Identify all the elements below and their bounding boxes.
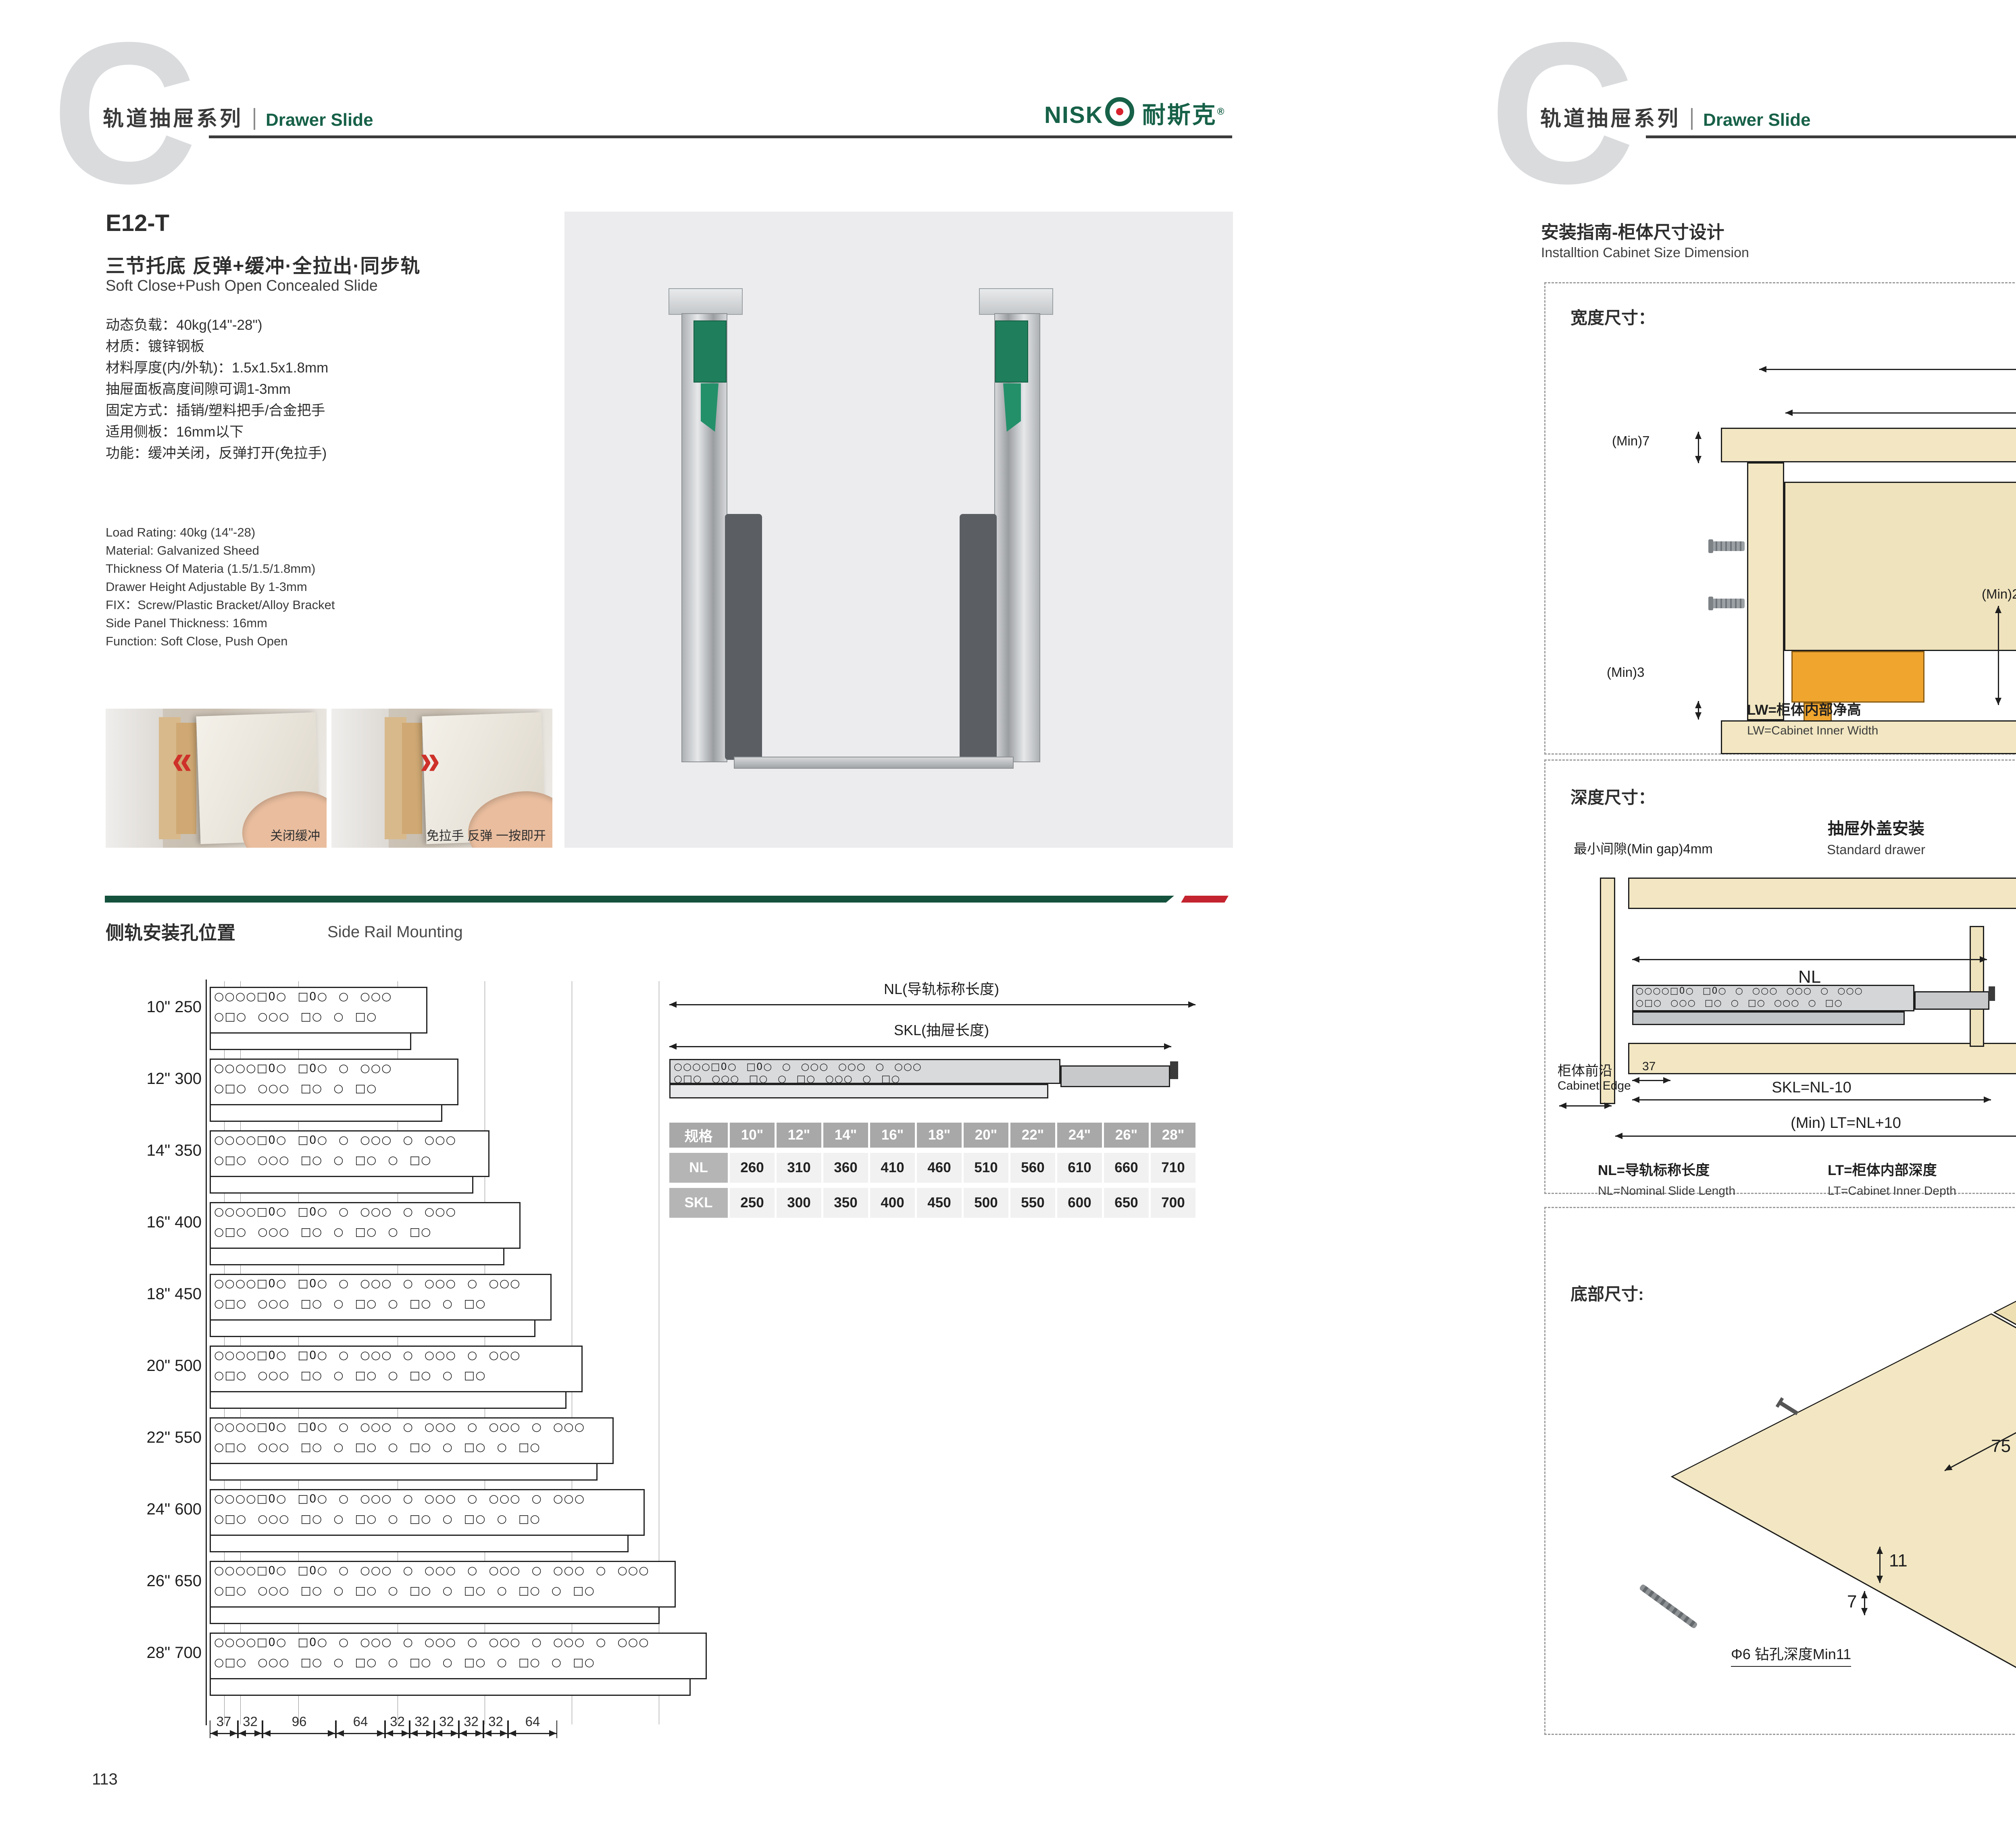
- min275-arrow: [1998, 606, 1999, 705]
- hole-pattern: ○□○ ○○○ □○ ○ □○ ○ □○ ○ □○ ○ □○: [214, 1440, 541, 1454]
- nl-arrow: [1632, 959, 1987, 960]
- bottom-dim-segment: 64: [508, 1714, 557, 1738]
- hole-pattern: ○○○○□0○ □0○ ○ ○○○ ○ ○○○ ○ ○○○: [214, 1348, 521, 1362]
- drawer-wood-edge: [402, 723, 422, 834]
- d11-arrow: [1879, 1547, 1881, 1583]
- dim-arrow-line: [337, 1733, 384, 1734]
- d11-label: 11: [1889, 1551, 1908, 1571]
- slide-extension: [1914, 991, 1989, 1010]
- bottom-dim-segment: 32: [483, 1714, 508, 1738]
- bottom-dim-segment: 96: [262, 1714, 336, 1738]
- dim-value: 32: [238, 1714, 262, 1729]
- rail-drawing: ○○○○□0○ □0○ ○ ○○○ ○ ○○○ ○ ○○○ ○ ○○○ ○ ○○…: [210, 1633, 707, 1679]
- hole-pattern: ○□○ ○○○ □○ ○ □○ ○ □○ ○ □○: [214, 1297, 486, 1310]
- rail-flange: [210, 1606, 660, 1624]
- slide-top-bracket: [979, 288, 1053, 315]
- hole-pattern: ○○○○□0○ □0○ ○ ○○○: [214, 1061, 392, 1075]
- product-photo: [564, 212, 1233, 848]
- spec-line-cn: 材料厚度(内/外轨)：1.5x1.5x1.8mm: [106, 357, 328, 379]
- legend-en: LW=Cabinet Inner Width: [1747, 724, 1878, 738]
- hole-pattern: ○○○○□0○ □0○ ○ ○○○ ○ ○○○ ○ ○○○ ○ ○○○: [214, 1492, 585, 1505]
- slide-green-clip: [995, 320, 1028, 383]
- model-number: E12-T: [106, 210, 169, 237]
- soft-close-arrow-icon: «: [172, 736, 192, 784]
- lw-arrow: [1759, 369, 2016, 370]
- spec-line-en: Material: Galvanized Sheed: [106, 541, 335, 560]
- hole-pattern: ○□○ ○○○ □○ ○ □○: [214, 1010, 377, 1023]
- rail-size-label: 22" 550: [125, 1429, 202, 1447]
- hole-pattern: ○○○○□0○ □0○ ○ ○○○ ○ ○○○: [214, 1205, 456, 1218]
- drawer-panel: [1784, 482, 2016, 651]
- rail-size-label: 26" 650: [125, 1572, 202, 1590]
- lw-label: LW: [1759, 341, 2016, 361]
- dim-arrow-line: [435, 1733, 458, 1734]
- rail-flange: [210, 1535, 629, 1552]
- rail-row: 22" 550○○○○□0○ □0○ ○ ○○○ ○ ○○○ ○ ○○○ ○ ○…: [153, 1417, 1250, 1486]
- rail-flange: [210, 1032, 411, 1050]
- cabinet-top: [1628, 878, 2016, 909]
- header-rule: [1646, 135, 2016, 138]
- skw-arrow: [1785, 412, 2016, 414]
- rail-size-label: 20" 500: [125, 1357, 202, 1375]
- min275-label: (Min)27.5: [1982, 587, 2016, 602]
- cabinet-side: [331, 709, 389, 848]
- min-gap-label: 最小间隙(Min gap)4mm: [1574, 838, 1713, 857]
- screw-icon: [1712, 541, 1745, 551]
- rail-row: 20" 500○○○○□0○ □0○ ○ ○○○ ○ ○○○ ○ ○○○○□○ …: [153, 1346, 1250, 1414]
- bottom-dim-segment: 37: [210, 1714, 238, 1738]
- width-section-title: 宽度尺寸：: [1570, 304, 1655, 329]
- nl-label: NL: [1632, 967, 1987, 987]
- legend-lt: LT=柜体内部深度 LT=Cabinet Inner Depth: [1828, 1159, 1956, 1198]
- dim-arrow-line: [386, 1733, 409, 1734]
- standard-title-en: Standard drawer: [1755, 842, 1997, 857]
- cabinet-bottom: [1628, 1043, 2016, 1074]
- bottom-section-title: 底部尺寸:: [1570, 1281, 1644, 1305]
- min7-arrow: [1698, 432, 1699, 463]
- dim-value: 64: [508, 1714, 557, 1729]
- hole-pattern: ○□○ ○○○ □○ ○ □○: [214, 1082, 377, 1095]
- spec-line-en: Side Panel Thickness: 16mm: [106, 614, 335, 632]
- slide-hook: [1989, 986, 1995, 1001]
- drill-bit-icon: [1639, 1584, 1698, 1629]
- dim-value: 32: [434, 1714, 459, 1729]
- skw-label: SKW=LW-42: [1785, 387, 2016, 404]
- rail-drawing: ○○○○□0○ □0○ ○ ○○○○□○ ○○○ □○ ○ □○: [210, 1059, 458, 1105]
- d75-label: 75: [1991, 1436, 2011, 1456]
- slide-hardware-left: [1791, 651, 1924, 703]
- legend-en: NL=Nominal Slide Length: [1598, 1184, 1735, 1198]
- min3-arrow: [1698, 701, 1699, 720]
- push-open-arrow-icon: »: [420, 736, 440, 784]
- slide-left: [633, 288, 786, 796]
- catalog-spread: C 轨道抽屉系列Drawer Slide NISK耐斯克® C 轨道抽屉系列Dr…: [0, 0, 2016, 1847]
- bottom-dim-segment: 32: [410, 1714, 434, 1738]
- rail-row: 28" 700○○○○□0○ □0○ ○ ○○○ ○ ○○○ ○ ○○○ ○ ○…: [153, 1633, 1250, 1701]
- cabinet-side: [106, 709, 163, 848]
- series-title-en: Drawer Slide: [1703, 110, 1811, 130]
- rail-size-label: 28" 700: [125, 1644, 202, 1662]
- d7-arrow: [1864, 1591, 1865, 1615]
- dim-arrow-line: [210, 1733, 237, 1734]
- logo-cn: 耐斯克: [1142, 102, 1217, 128]
- hole-pattern: ○□○ ○○○ □○ ○ □○ ○ □○: [214, 1153, 432, 1167]
- dim-value: 32: [483, 1714, 508, 1729]
- logo-o-icon: [1105, 97, 1134, 126]
- rail-drawing: ○○○○□0○ □0○ ○ ○○○ ○ ○○○○□○ ○○○ □○ ○ □○ ○…: [210, 1130, 489, 1177]
- standard-title-cn: 抽屉外盖安装: [1755, 815, 1997, 839]
- dim-arrow-line: [239, 1733, 262, 1734]
- slide-damper-block: [725, 514, 762, 760]
- rail-size-label: 12" 300: [125, 1070, 202, 1088]
- hole-pattern: ○□○ ○○○ □○ ○ □○ ○ □○: [214, 1225, 432, 1238]
- bottom-dim-segment: 64: [336, 1714, 385, 1738]
- rail-row: 16" 400○○○○□0○ □0○ ○ ○○○ ○ ○○○○□○ ○○○ □○…: [153, 1202, 1250, 1271]
- rail-flange: [210, 1248, 504, 1265]
- min3-label: (Min)3: [1607, 665, 1645, 680]
- depth-section-title: 深度尺寸：: [1570, 784, 1655, 809]
- spec-list-cn: 动态负载：40kg(14"-28")材质：镀锌钢板材料厚度(内/外轨)：1.5x…: [106, 314, 328, 464]
- legend-cn: LW=柜体内部净高: [1747, 699, 1878, 719]
- hole-pattern: ○□○ ○○○ □○ ○ □○ ○ □○ ○ □○ ○ □○ ○ □○: [214, 1656, 595, 1669]
- cabinet-edge-en: Cabinet Edge: [1558, 1079, 1631, 1093]
- product-title-cn: 三节托底 反弹+缓冲·全拉出·同步轨: [106, 250, 421, 278]
- rail-row: 14" 350○○○○□0○ □0○ ○ ○○○ ○ ○○○○□○ ○○○ □○…: [153, 1130, 1250, 1199]
- spec-line-en: Thickness Of Materia (1.5/1.5/1.8mm): [106, 560, 335, 578]
- product-title-en: Soft Close+Push Open Concealed Slide: [106, 277, 378, 295]
- cabinet-edge-cn: 柜体前沿: [1558, 1060, 1612, 1079]
- sync-bar: [734, 757, 1014, 769]
- dim-arrow-line: [410, 1733, 433, 1734]
- rail-row: 24" 600○○○○□0○ □0○ ○ ○○○ ○ ○○○ ○ ○○○ ○ ○…: [153, 1489, 1250, 1558]
- rail-size-label: 16" 400: [125, 1213, 202, 1231]
- cabinet-edge-arrow: [1559, 1105, 1612, 1107]
- width-dimension-box: 宽度尺寸： LW SKW=LW-42 (Min)7 (Max)16 12 10 …: [1544, 282, 2016, 755]
- rail-drawing: ○○○○□0○ □0○ ○ ○○○ ○ ○○○ ○ ○○○○□○ ○○○ □○ …: [210, 1346, 583, 1392]
- spec-line-cn: 功能：缓冲关闭，反弹打开(免拉手): [106, 443, 328, 464]
- feature-photo-soft-close: « 关闭缓冲: [106, 709, 327, 848]
- hole-pattern: ○□○ ○○○ □○ ○ □○ ○ □○ ○ □○ ○ □○ ○ □○: [214, 1584, 595, 1597]
- rail-flange: [210, 1104, 442, 1122]
- rail-size-label: 18" 450: [125, 1285, 202, 1303]
- hole-pattern: ○○○○□0○ □0○ ○ ○○○ ○ ○○○ ○ ○○○ ○ ○○○: [214, 1420, 585, 1433]
- hole-pattern: ○○○○□0○ □0○ ○ ○○○ ○ ○○○: [214, 1133, 456, 1146]
- cabinet-top-panel: [1721, 428, 2016, 462]
- rail-size-label: 14" 350: [125, 1142, 202, 1160]
- section-divider-green: [105, 896, 1174, 903]
- rail-flange: [210, 1319, 535, 1337]
- page-number-left: 113: [92, 1770, 118, 1789]
- cabinet-left-panel: [1747, 462, 1784, 720]
- hole-pattern: ○○○○□0○ □0○ ○ ○○○ ○ ○○○ ○ ○○○ ○ ○○○ ○ ○○…: [214, 1635, 650, 1649]
- hole-pattern: ○○○○□0○ □0○ ○ ○○○ ○ ○○○ ○ ○○○ ○ ○○○ ○ ○○…: [214, 1564, 650, 1577]
- slide-right: [935, 288, 1089, 796]
- dim-value: 32: [459, 1714, 483, 1729]
- section-title-cn: 侧轨安装孔位置: [106, 918, 235, 945]
- series-title-cn: 轨道抽屉系列: [103, 107, 243, 131]
- spec-line-en: Function: Soft Close, Push Open: [106, 632, 335, 650]
- legend-lw: LW=柜体内部净高 LW=Cabinet Inner Width: [1747, 699, 1878, 738]
- hole-pattern: ○□○ ○○○ □○ ○ □○ ○ □○ ○ □○: [214, 1369, 486, 1382]
- logo-text: NISK: [1044, 102, 1104, 128]
- spec-line-cn: 适用侧板：16mm以下: [106, 421, 328, 443]
- spec-line-en: Load Rating: 40kg (14"-28): [106, 523, 335, 541]
- section-title-en: Side Rail Mounting: [327, 923, 463, 941]
- dim-arrow-line: [509, 1733, 556, 1734]
- dim-arrow-line: [484, 1733, 507, 1734]
- dim-arrow-line: [263, 1733, 335, 1734]
- skl-formula-arrow: [1632, 1099, 1991, 1100]
- hole-pattern: ○○○○□0○ □0○ ○ ○○○: [214, 990, 392, 1003]
- divider-bar: [1691, 108, 1693, 130]
- series-title-cn: 轨道抽屉系列: [1540, 107, 1681, 131]
- spec-line-cn: 固定方式：插销/塑料把手/合金把手: [106, 400, 328, 421]
- rail-flange: [210, 1391, 566, 1409]
- drill-note: Φ6 钻孔深度Min11: [1731, 1643, 1851, 1667]
- spec-line-cn: 动态负载：40kg(14"-28"): [106, 314, 328, 336]
- series-header: 轨道抽屉系列Drawer Slide: [103, 102, 373, 132]
- rail-drawing: ○○○○□0○ □0○ ○ ○○○○□○ ○○○ □○ ○ □○: [210, 987, 427, 1034]
- photo-caption: 免拉手 反弹 一按即开: [427, 826, 546, 844]
- install-title-en: Installtion Cabinet Size Dimension: [1541, 245, 1749, 261]
- hole-pattern: ○□○ ○○○ □○ ○ □○ ○ □○ ○ □○ ○ □○: [214, 1512, 541, 1525]
- bottom-dim-segment: 32: [238, 1714, 262, 1738]
- slide-top-bracket: [669, 288, 743, 315]
- depth-dimension-box: 深度尺寸： 抽屉外盖安装 Standard drawer 最小间隙(Min ga…: [1544, 759, 2016, 1194]
- rail-mounting-diagram: 10" 250○○○○□0○ □0○ ○ ○○○○□○ ○○○ □○ ○ □○1…: [153, 975, 1250, 1766]
- std-37-label: 37: [1642, 1060, 1656, 1073]
- install-title-cn: 安装指南-柜体尺寸设计: [1541, 218, 1724, 243]
- spec-line-en: Drawer Height Adjustable By 1-3mm: [106, 578, 335, 596]
- dim-value: 32: [410, 1714, 434, 1729]
- screw-icon: [1712, 599, 1745, 608]
- rail-flange: [210, 1176, 473, 1194]
- spec-line-cn: 材质：镀锌钢板: [106, 336, 328, 357]
- photo-caption: 关闭缓冲: [270, 826, 320, 844]
- dim-value: 37: [210, 1714, 238, 1729]
- legend-en: LT=Cabinet Inner Depth: [1828, 1184, 1956, 1198]
- rail-flange: [210, 1463, 598, 1481]
- rail-drawing: ○○○○□0○ □0○ ○ ○○○ ○ ○○○ ○ ○○○○□○ ○○○ □○ …: [210, 1274, 552, 1321]
- legend-cn: LT=柜体内部深度: [1828, 1159, 1956, 1179]
- slide-green-clip: [694, 320, 727, 383]
- spec-list-en: Load Rating: 40kg (14"-28)Material: Galv…: [106, 523, 335, 650]
- section-divider-red: [1181, 896, 1229, 903]
- rail-row: 18" 450○○○○□0○ □0○ ○ ○○○ ○ ○○○ ○ ○○○○□○ …: [153, 1274, 1250, 1342]
- series-header: 轨道抽屉系列Drawer Slide: [1540, 102, 1811, 132]
- rail-flange: [210, 1678, 691, 1696]
- bottom-dim-segment: 32: [459, 1714, 483, 1738]
- rail-row: 12" 300○○○○□0○ □0○ ○ ○○○○□○ ○○○ □○ ○ □○: [153, 1059, 1250, 1127]
- spec-line-en: FIX：Screw/Plastic Bracket/Alloy Bracket: [106, 596, 335, 614]
- spec-line-cn: 抽屉面板高度间隙可调1-3mm: [106, 379, 328, 400]
- dim-value: 96: [262, 1714, 336, 1729]
- series-title-en: Drawer Slide: [266, 110, 373, 130]
- slide-flange: [1632, 1011, 1905, 1025]
- header-rule: [209, 135, 1232, 138]
- slide-rail: ○○○○□0○ □0○ ○ ○○○ ○○○ ○ ○○○ ○□○ ○○○ □○ ○…: [1632, 985, 1914, 1011]
- screw-icon: [1779, 1401, 1798, 1415]
- bottom-dimension-box: 底部尺寸: 75 85 11 7 Φ6 钻孔深度Min11 抽屉长度SKL=导轨…: [1544, 1207, 2016, 1735]
- divider-bar: [254, 108, 255, 130]
- slide-damper-block: [960, 514, 997, 760]
- registered-mark: ®: [1217, 106, 1225, 117]
- d7-label: 7: [1847, 1592, 1857, 1612]
- legend-nl: NL=导轨标称长度 NL=Nominal Slide Length: [1598, 1159, 1735, 1198]
- rail-drawing: ○○○○□0○ □0○ ○ ○○○ ○ ○○○ ○ ○○○ ○ ○○○ ○ ○○…: [210, 1561, 676, 1608]
- legend-cn: NL=导轨标称长度: [1598, 1159, 1735, 1179]
- rail-size-label: 10" 250: [125, 998, 202, 1016]
- min7-label: (Min)7: [1612, 433, 1650, 449]
- dim-arrow-line: [460, 1733, 483, 1734]
- rail-drawing: ○○○○□0○ □0○ ○ ○○○ ○ ○○○ ○ ○○○ ○ ○○○○□○ ○…: [210, 1489, 645, 1536]
- lt-formula-label: (Min) LT=NL+10: [1615, 1115, 2016, 1132]
- rail-row: 10" 250○○○○□0○ □0○ ○ ○○○○□○ ○○○ □○ ○ □○: [153, 987, 1250, 1055]
- rail-drawing: ○○○○□0○ □0○ ○ ○○○ ○ ○○○ ○ ○○○ ○ ○○○○□○ ○…: [210, 1417, 614, 1464]
- rail-drawing: ○○○○□0○ □0○ ○ ○○○ ○ ○○○○□○ ○○○ □○ ○ □○ ○…: [210, 1202, 521, 1249]
- dim-value: 64: [336, 1714, 385, 1729]
- lt-formula-arrow: [1615, 1136, 2016, 1137]
- hole-pattern: ○○○○□0○ □0○ ○ ○○○ ○ ○○○ ○ ○○○: [214, 1277, 521, 1290]
- rail-row: 26" 650○○○○□0○ □0○ ○ ○○○ ○ ○○○ ○ ○○○ ○ ○…: [153, 1561, 1250, 1629]
- feature-photo-push-open: » 免拉手 反弹 一按即开: [331, 709, 552, 848]
- bottom-dim-segment: 32: [434, 1714, 459, 1738]
- brand-logo: NISK耐斯克®: [1044, 96, 1225, 130]
- skl-formula-label: SKL=NL-10: [1632, 1079, 1991, 1096]
- rail-size-label: 24" 600: [125, 1500, 202, 1518]
